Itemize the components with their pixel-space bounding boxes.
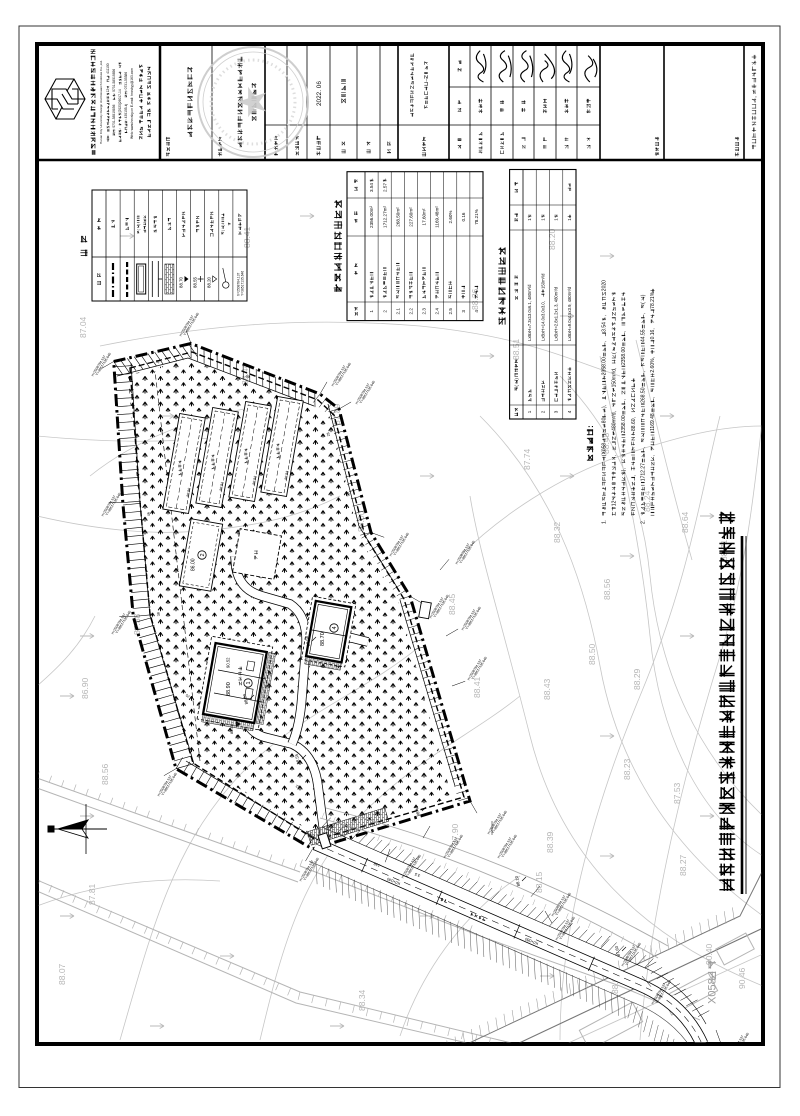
svg-text:88.32: 88.32	[552, 521, 562, 543]
svg-text:38: 38	[156, 612, 161, 617]
svg-text:87.04: 87.04	[78, 316, 88, 338]
svg-text:88.34: 88.34	[357, 989, 367, 1011]
svg-text:2: 2	[382, 310, 387, 313]
svg-text:,: ,	[650, 455, 656, 456]
svg-text:88.70: 88.70	[179, 276, 184, 288]
svg-text:90.52: 90.52	[225, 657, 230, 668]
svg-text:88.50: 88.50	[587, 643, 597, 665]
svg-text:88.90: 88.90	[226, 682, 232, 696]
svg-text::: :	[118, 128, 122, 129]
svg-text:2022. 06: 2022. 06	[316, 81, 323, 106]
svg-text:1: 1	[369, 310, 374, 313]
svg-text:88.07: 88.07	[57, 963, 67, 985]
svg-text:LxBxH=2.8x1.2x1.3, 480m³/d: LxBxH=2.8x1.2x1.3, 480m³/d	[554, 286, 559, 341]
svg-text:4: 4	[332, 626, 338, 629]
svg-text:1712.27: 1712.27	[641, 463, 647, 481]
svg-text:(X058: (X058	[602, 443, 608, 457]
svg-text:12: 12	[106, 89, 110, 93]
svg-text:88.60,: 88.60,	[631, 417, 637, 431]
svg-text:227.60m²: 227.60m²	[409, 207, 414, 227]
svg-text:1169.48: 1169.48	[650, 413, 656, 431]
svg-text:2.2: 2.2	[409, 308, 414, 315]
svg-text:3: 3	[461, 310, 466, 313]
svg-text:87.53: 87.53	[672, 782, 682, 804]
svg-text:,: ,	[602, 341, 608, 342]
svg-text:),: ),	[621, 468, 627, 471]
svg-text:2.5: 2.5	[448, 308, 453, 315]
svg-text:88.15: 88.15	[534, 871, 544, 893]
svg-text:88.56: 88.56	[602, 578, 612, 600]
svg-text:44.55: 44.55	[641, 329, 647, 342]
svg-text:46: 46	[147, 512, 151, 516]
svg-text:0.16,: 0.16,	[650, 328, 656, 339]
svg-text:2.60%: 2.60%	[448, 210, 453, 223]
svg-text:Hunan City University Design A: Hunan City University Design And Researc…	[99, 60, 103, 144]
svg-text:1: 1	[527, 410, 532, 413]
svg-text:0.16: 0.16	[461, 212, 466, 221]
svg-text:Y=38517135.646: Y=38517135.646	[240, 271, 244, 296]
svg-text:2.4: 2.4	[435, 308, 440, 315]
svg-text:,: ,	[641, 313, 647, 314]
svg-text:2.1: 2.1	[395, 308, 400, 315]
svg-text:[2023]26017-14: [2023]26017-14	[118, 89, 122, 112]
svg-text:4: 4	[474, 310, 479, 313]
svg-text:268.50: 268.50	[641, 387, 647, 403]
svg-text:,: ,	[621, 330, 627, 331]
svg-text:87.81: 87.81	[87, 883, 97, 905]
svg-text:12: 12	[611, 500, 617, 506]
svg-text:268.50m²: 268.50m²	[395, 207, 400, 227]
svg-text:,: ,	[641, 371, 647, 372]
svg-text:2.: 2.	[641, 520, 647, 524]
svg-text:87.74: 87.74	[522, 448, 532, 470]
svg-text:: 411100: : 411100	[106, 63, 110, 76]
svg-text:2358.00: 2358.00	[602, 357, 608, 375]
svg-text:88.27: 88.27	[678, 854, 688, 876]
svg-text:88.20: 88.20	[547, 228, 557, 250]
svg-text:88.51: 88.51	[511, 338, 521, 360]
svg-text:,: ,	[611, 455, 617, 456]
svg-text:480m³/d,: 480m³/d,	[611, 411, 617, 431]
svg-text:LxBxH=14.0x3.0x3.0,: LxBxH=14.0x3.0x3.0,	[540, 301, 545, 341]
svg-text:2: 2	[200, 553, 206, 556]
svg-text:88.20: 88.20	[207, 276, 212, 288]
svg-text:: 0731-58519856: : 0731-58519856	[112, 69, 116, 94]
svg-text:3.54: 3.54	[602, 322, 608, 332]
svg-text:86.00: 86.00	[191, 558, 197, 571]
svg-text:1169.48m²: 1169.48m²	[435, 206, 440, 228]
svg-text:—: —	[424, 77, 429, 82]
svg-text:2.57: 2.57	[382, 183, 387, 192]
svg-text:): )	[136, 224, 140, 225]
svg-text:88.36: 88.36	[470, 288, 480, 310]
svg-text:88.55: 88.55	[193, 276, 198, 288]
svg-text::: :	[118, 71, 122, 72]
svg-text:80: 80	[602, 417, 608, 423]
svg-text:90.46: 90.46	[737, 967, 747, 989]
svg-text:2.3: 2.3	[422, 308, 427, 315]
svg-text:150m³/d: 150m³/d	[540, 273, 545, 289]
svg-text:/: /	[136, 215, 140, 216]
svg-text:3.54: 3.54	[369, 183, 374, 192]
svg-text:3: 3	[554, 410, 559, 413]
svg-text:88.39: 88.39	[545, 831, 555, 853]
svg-text:2358.00: 2358.00	[621, 347, 627, 365]
svg-text:78.21%: 78.21%	[650, 291, 656, 309]
svg-text:2.60%,: 2.60%,	[650, 357, 656, 373]
svg-text:,: ,	[631, 475, 637, 476]
svg-text:1: 1	[246, 681, 252, 684]
svg-text::: :	[106, 135, 110, 136]
svg-text:2020: 2020	[602, 280, 608, 291]
svg-text:88.29: 88.29	[632, 668, 642, 690]
svg-text:,: ,	[602, 315, 608, 316]
svg-text:: 0731-58519856: : 0731-58519856	[112, 104, 116, 129]
svg-text:,: ,	[650, 396, 656, 397]
svg-text:,: ,	[621, 399, 627, 400]
svg-text:LxBxH=7.3x13.0x6.1, 480m³/d: LxBxH=7.3x13.0x6.1, 480m³/d	[527, 284, 532, 341]
svg-text:2: 2	[541, 410, 546, 413]
svg-text:1.: 1.	[602, 520, 608, 524]
svg-text:),: ),	[602, 405, 608, 408]
svg-text:86.90: 86.90	[80, 677, 90, 699]
svg-text:17.60m²: 17.60m²	[422, 208, 427, 225]
svg-text:X058: X058	[707, 978, 719, 1004]
svg-text:③: ③	[307, 833, 314, 838]
svg-text:LxBxH=9.0x4.5x3.9, 480m³/d: LxBxH=9.0x4.5x3.9, 480m³/d	[567, 286, 572, 341]
svg-text:,: ,	[641, 447, 647, 448]
svg-text:): )	[221, 225, 225, 226]
svg-text:88.56: 88.56	[100, 763, 110, 785]
svg-text:78.21%: 78.21%	[474, 209, 479, 225]
svg-text:88.64: 88.64	[680, 511, 690, 533]
svg-text:: 0731-55586: : 0731-55586	[124, 72, 128, 92]
svg-text:88.43: 88.43	[542, 678, 552, 700]
svg-text:4: 4	[567, 410, 572, 413]
svg-text:150m³/d,: 150m³/d,	[611, 368, 617, 388]
svg-text:1712.27m²: 1712.27m²	[382, 206, 387, 228]
svg-text:Web: www.hncsky.cn E-mail: hn: Web: www.hncsky.cn E-mail: hncskyy@163.c…	[130, 68, 134, 139]
svg-text:: 430105-kj: : 430105-kj	[124, 104, 128, 121]
svg-text:2356.00m²: 2356.00m²	[369, 206, 374, 228]
svg-text::: :	[585, 425, 595, 428]
svg-text:88.23: 88.23	[622, 758, 632, 780]
svg-text:2358.00: 2358.00	[621, 415, 627, 433]
svg-text:88.70: 88.70	[320, 632, 326, 646]
